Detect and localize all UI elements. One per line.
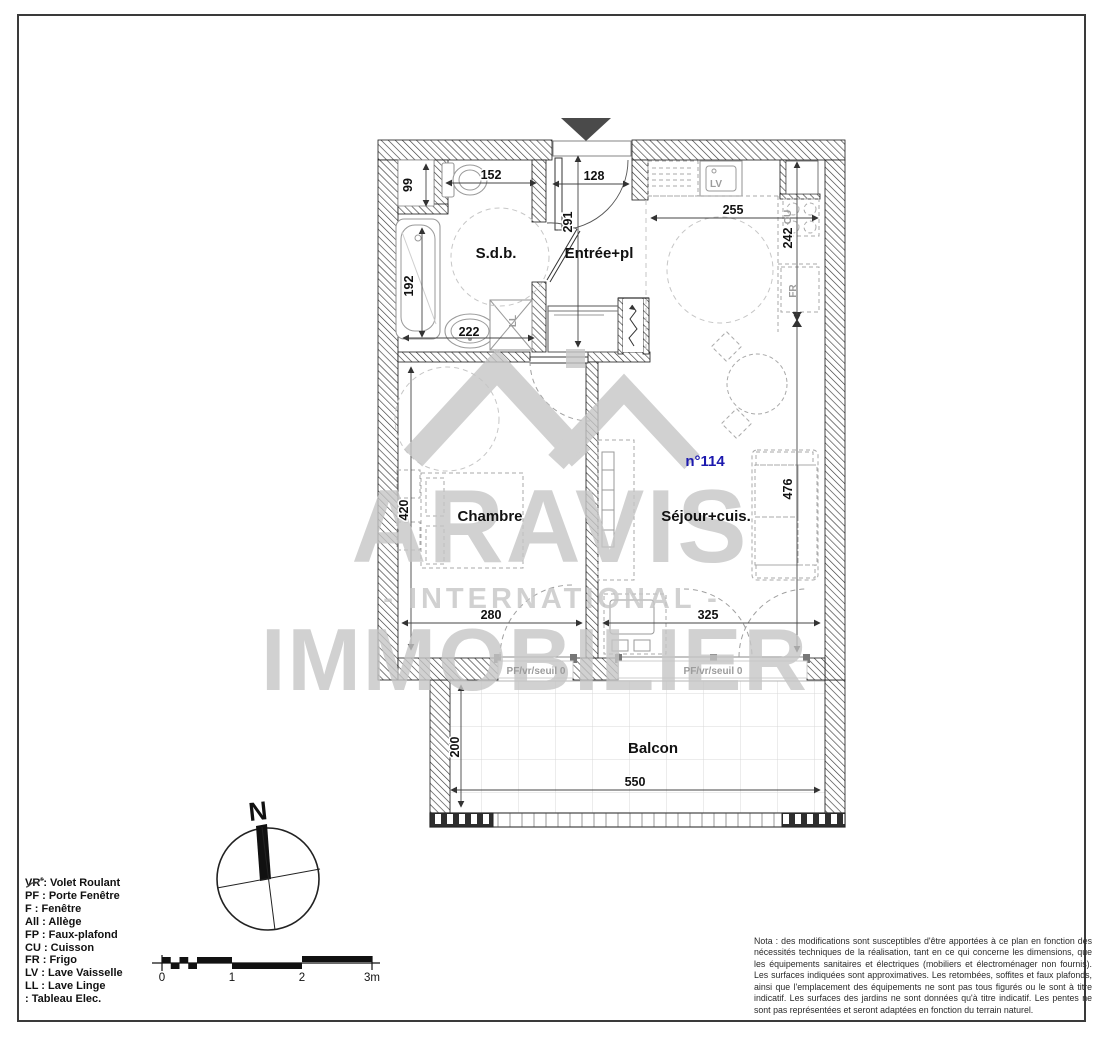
scale-bar: 0 1 2 3m [152,955,380,984]
room-label-bathroom: S.d.b. [476,245,517,262]
watermark-roof-icon [413,367,581,458]
room-label-bedroom: Chambre [457,508,522,525]
tableau-elec-icon [25,877,47,889]
label-dishwasher: LV [710,179,722,190]
watermark-roof2-icon [556,389,692,462]
dining-table [727,354,787,414]
elec-niche-wall-l [618,298,623,354]
floorplan-page: ARAVIS - INTERNATIONAL - IMMOBILIER S.d.… [0,0,1100,1039]
dim-bath-length: 192 [402,276,416,297]
legend-item-tableau: : Tableau Elec. [25,993,123,1006]
scale-tick-3: 3m [364,972,380,984]
electrical-panel [623,299,643,352]
dim-niche: 99 [401,178,415,192]
entrance-arrow-icon [561,118,611,141]
scale-tick-0: 0 [159,972,165,984]
wall-right [825,160,845,680]
partition-bath-upper [532,160,546,222]
window-label-2: PF/vr/seuil 0 [684,666,743,677]
room-label-living: Séjour+cuis. [661,508,751,525]
dim-bedroom-width: 280 [481,608,502,622]
room-label-balcony: Balcon [628,740,678,757]
dim-entrance-depth: 291 [561,212,575,233]
label-fridge: FR [788,284,799,298]
label-hob: CU [783,210,794,224]
fridge [781,267,819,312]
legend-item-ll: LL : Lave Linge [25,980,123,993]
kitchen-duct-niche [786,161,818,194]
wall-top-left [378,140,552,160]
dim-living-width: 325 [698,608,719,622]
watermark-name: ARAVIS [351,469,748,585]
legend-item-lv: LV : Lave Vaisselle [25,967,123,980]
window-label-1: PF/vr/seuil 0 [507,666,566,677]
compass-north-label: N [247,795,269,827]
dim-bath-width: 222 [459,325,480,339]
dim-balcony-depth: 200 [448,737,462,758]
label-washer: LL [508,315,519,327]
compass: N [217,795,320,930]
dim-living-depth: 476 [781,479,795,500]
entrance-closet [548,306,618,352]
scale-tick-1: 1 [229,972,235,984]
unit-number: n°114 [685,453,725,470]
dim-entrance-width: 128 [584,169,605,183]
turning-circle-living [667,217,773,323]
chair-1 [712,332,742,362]
legend-item-f: F : Fenêtre [25,903,123,916]
legend-item-pf: PF : Porte Fenêtre [25,890,123,903]
legend-item-all: All : Allège [25,916,123,929]
chair-2 [722,409,752,439]
dim-kitchen-width: 255 [723,203,744,217]
wall-kitchen-stub [632,160,648,200]
legend-item-tableau-label: : Tableau Elec. [25,993,101,1006]
dim-kitchen-depth: 242 [781,228,795,249]
watermark-tagline: IMMOBILIER [261,610,809,709]
partition-horizontal-left [398,352,530,362]
dim-balcony-width: 550 [625,775,646,789]
floorplan-drawing: ARAVIS - INTERNATIONAL - IMMOBILIER S.d.… [0,0,1100,1039]
balcony-railing [430,813,845,827]
legend: VR : Volet Roulant PF : Porte Fenêtre F … [25,877,123,1006]
room-label-entrance: Entrée+pl [565,245,634,262]
nota-text: Nota : des modifications sont susceptibl… [754,936,1092,1016]
kitchen-duct-wall-b [780,194,820,199]
dim-wc: 152 [481,168,502,182]
north-needle-icon [256,824,271,881]
legend-item-fp: FP : Faux-plafond [25,929,123,942]
legend-item-cu: CU : Cuisson [25,942,123,955]
kitchen-duct-wall-l [780,160,786,198]
legend-item-fr: FR : Frigo [25,954,123,967]
wall-top-right [632,140,845,160]
scale-tick-2: 2 [299,972,305,984]
watermark: ARAVIS - INTERNATIONAL - IMMOBILIER [261,349,809,709]
dishwasher [648,161,698,196]
dim-bedroom-depth: 420 [397,500,411,521]
sofa [752,450,818,580]
balcony-wall-right [825,680,845,813]
watermark-dot-icon [566,349,585,368]
